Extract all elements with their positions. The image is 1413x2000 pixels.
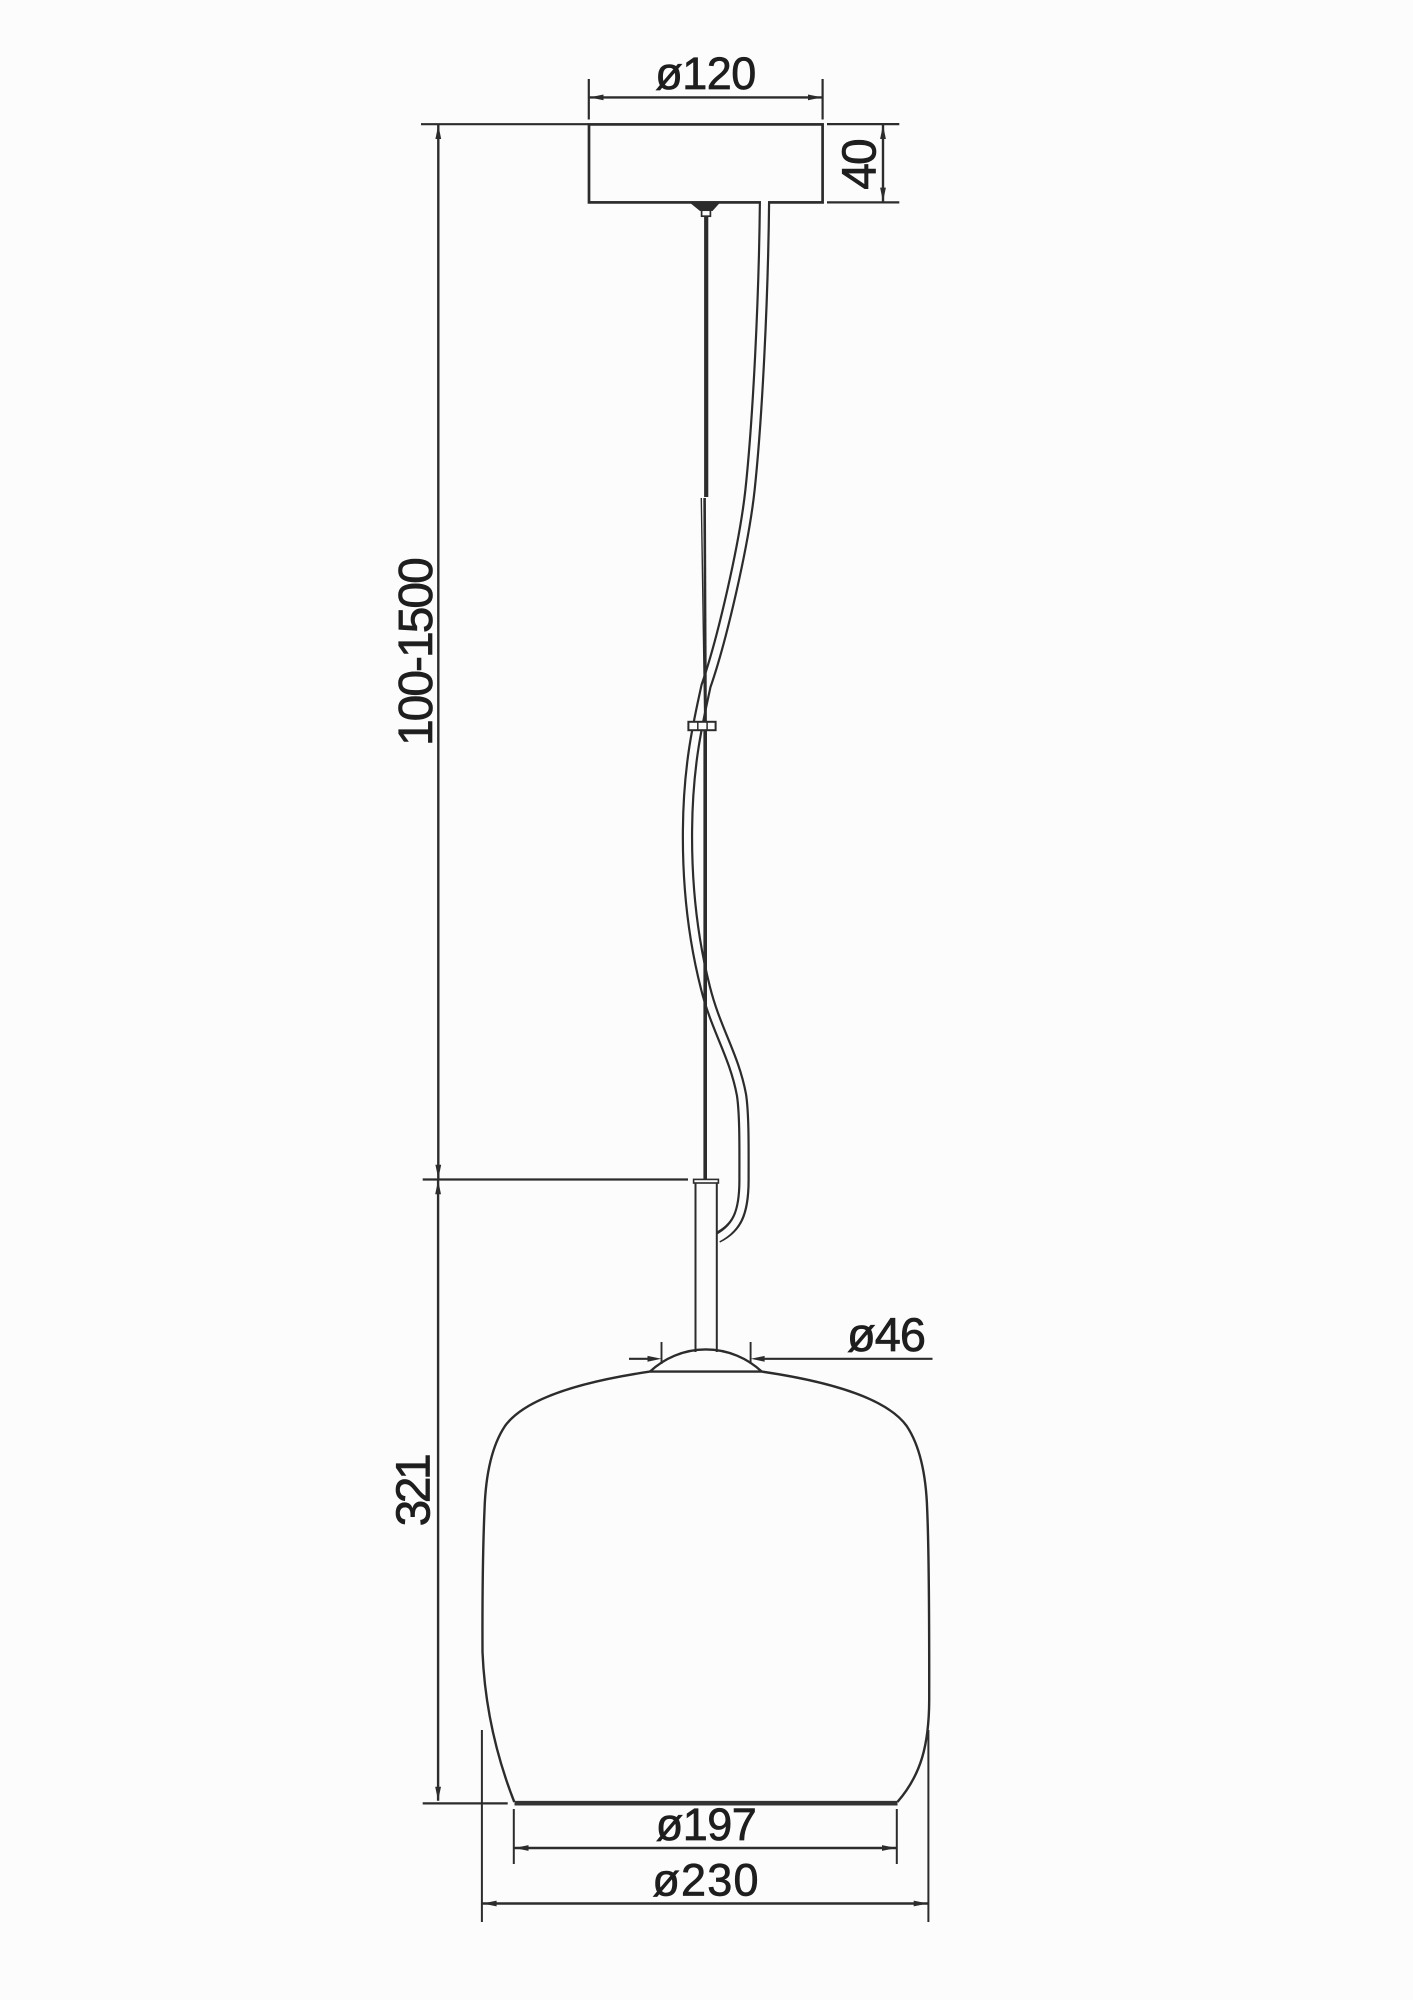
svg-text:ø46: ø46 xyxy=(847,1308,925,1361)
svg-text:321: 321 xyxy=(387,1455,440,1526)
svg-text:ø230: ø230 xyxy=(652,1855,759,1906)
svg-text:ø197: ø197 xyxy=(656,1799,757,1850)
svg-text:40: 40 xyxy=(833,140,886,190)
svg-text:ø120: ø120 xyxy=(655,48,756,99)
svg-text:100-1500: 100-1500 xyxy=(390,559,443,746)
